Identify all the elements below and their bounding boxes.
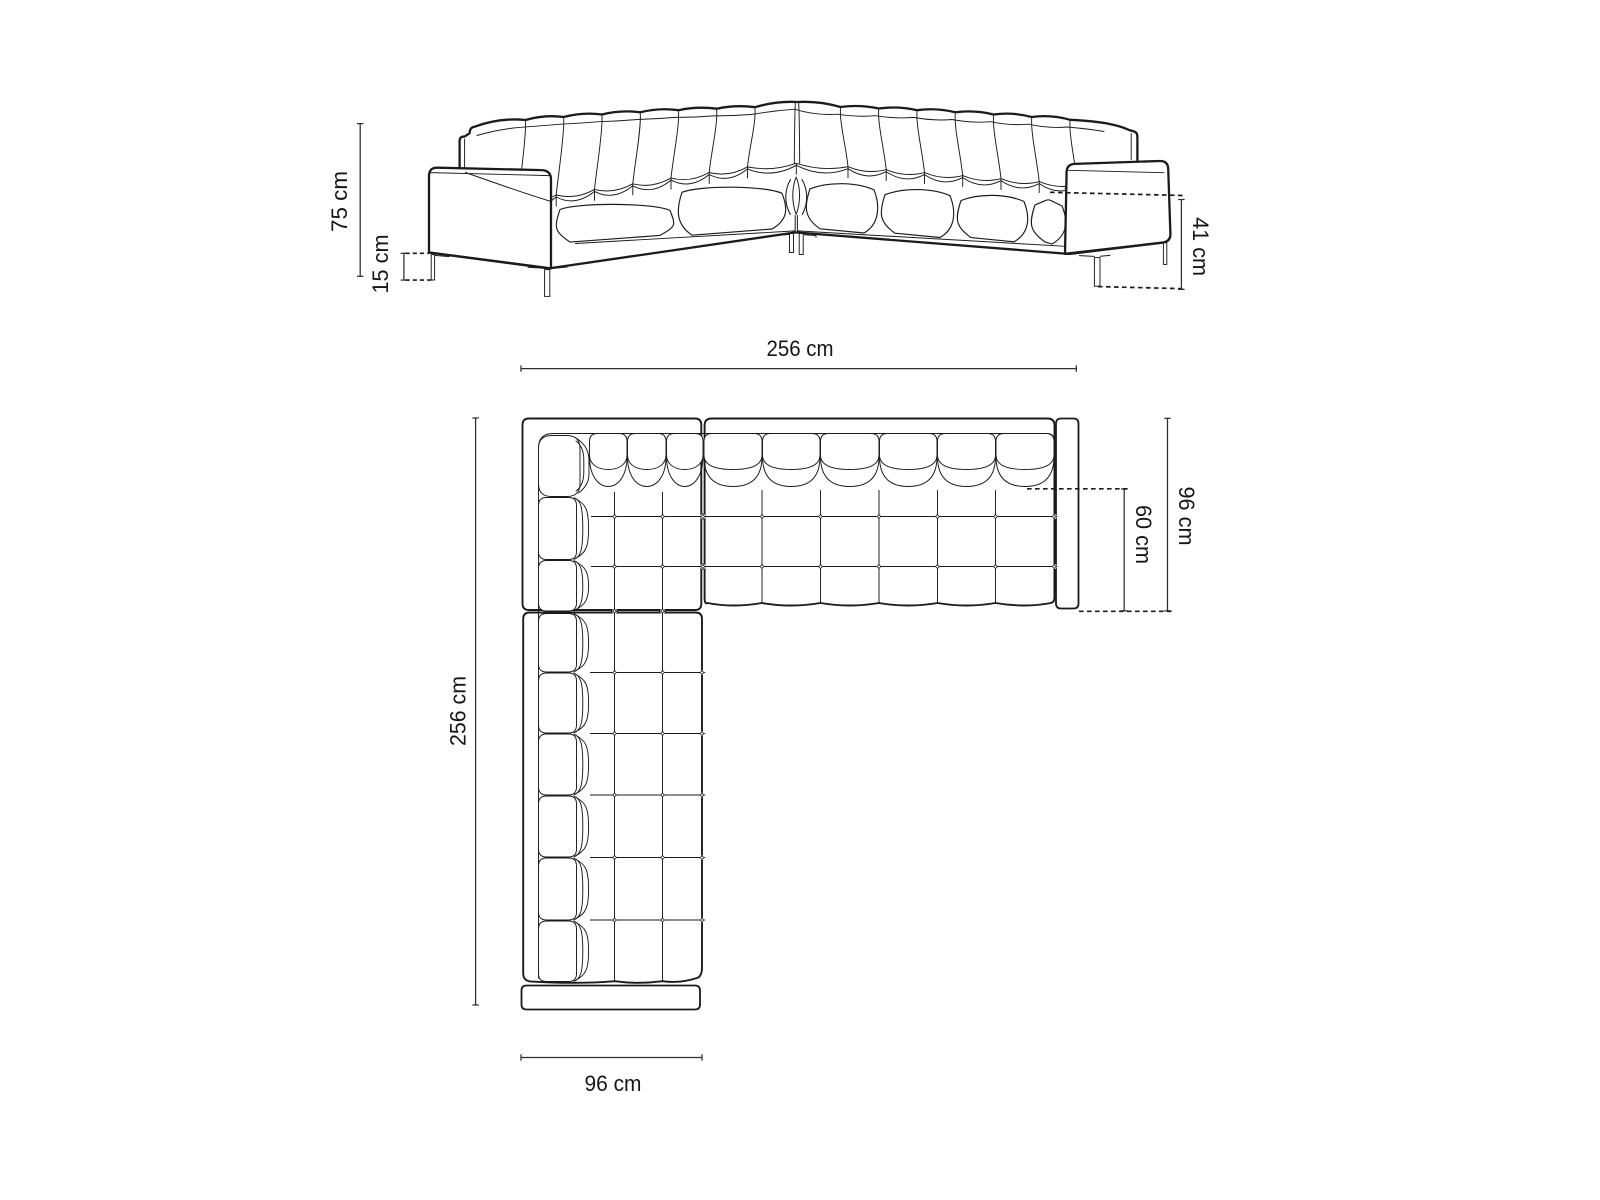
svg-text:60 cm: 60 cm	[1131, 505, 1156, 564]
svg-text:41 cm: 41 cm	[1188, 217, 1213, 276]
svg-text:256 cm: 256 cm	[767, 336, 834, 361]
svg-text:96 cm: 96 cm	[585, 1071, 642, 1096]
svg-text:256 cm: 256 cm	[446, 676, 471, 746]
svg-text:96 cm: 96 cm	[1174, 487, 1199, 546]
svg-text:15 cm: 15 cm	[368, 235, 393, 294]
svg-text:75 cm: 75 cm	[327, 171, 352, 232]
